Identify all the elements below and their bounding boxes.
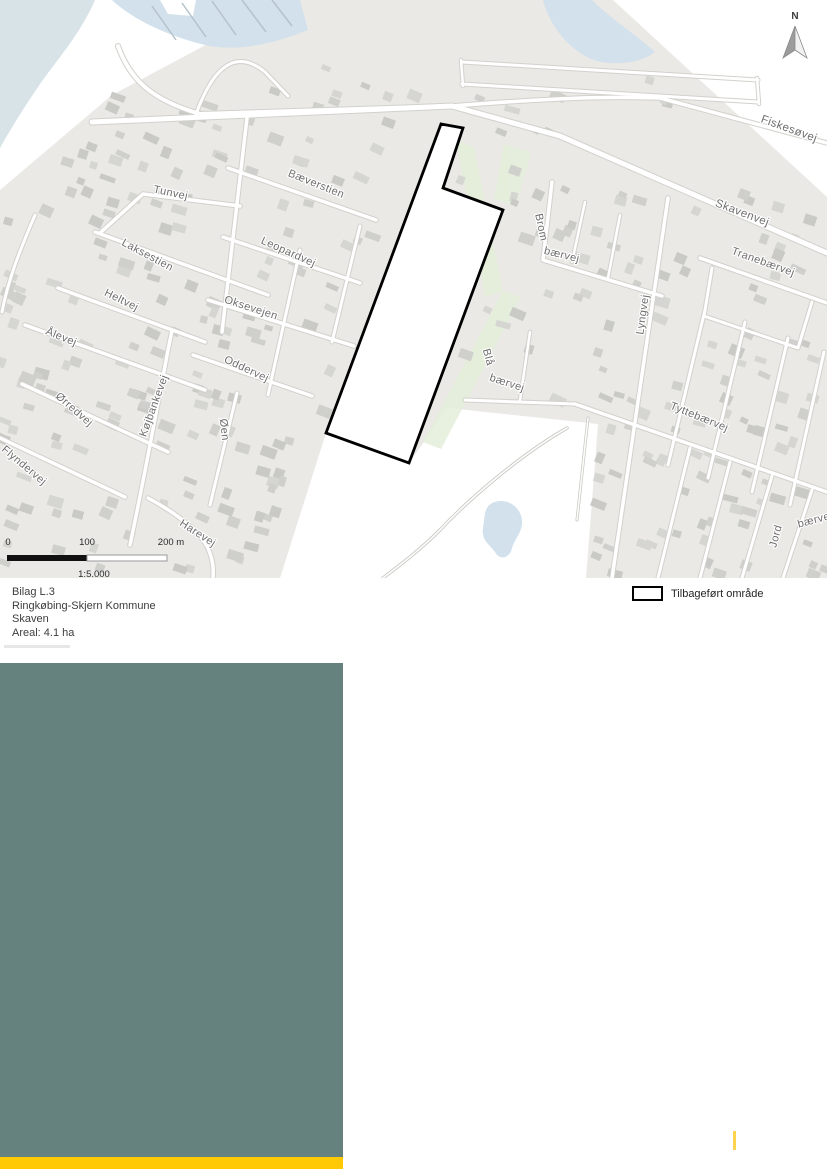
legend: Tilbageført område [632,586,764,601]
yellow-accent-bar [0,1157,343,1169]
legend-swatch [632,586,663,601]
legend-label: Tilbageført område [671,588,764,600]
scale-tick-100: 100 [79,537,95,548]
caption-area: Areal: 4.1 ha [12,627,156,641]
north-label: N [791,11,798,22]
caption-kommune: Ringkøbing-Skjern Kommune [12,600,156,614]
caption-bilag: Bilag L.3 [12,586,156,600]
teal-panel [0,663,343,1157]
scale-bar-black-segment [7,555,87,561]
scale-tick-0: 0 [5,537,10,548]
map: TunvejBæverstienLaksestienLeopardvejHelt… [0,0,827,578]
document-page: TunvejBæverstienLaksestienLeopardvejHelt… [0,0,827,1169]
fine-print-smudge [4,645,70,648]
street-label-øen: Øen [217,418,231,441]
north-arrow-icon: N [783,11,807,58]
scale-ratio: 1:5.000 [78,569,110,578]
scale-bar-white-segment [87,555,167,561]
map-caption: Bilag L.3 Ringkøbing-Skjern Kommune Skav… [12,586,156,640]
yellow-tick-mark [733,1131,736,1150]
scale-tick-200: 200 m [158,537,184,548]
caption-place: Skaven [12,613,156,627]
pond [483,501,522,557]
